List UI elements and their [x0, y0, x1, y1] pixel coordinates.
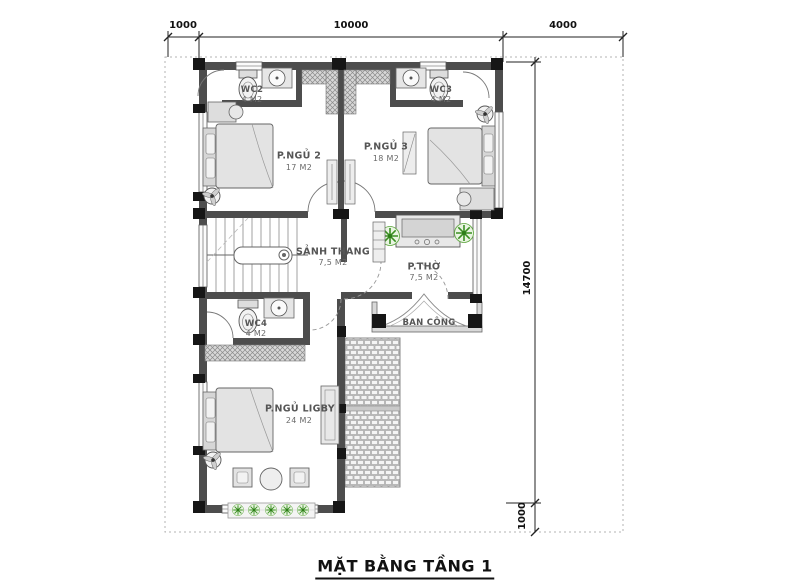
planter-plant: [248, 504, 259, 515]
shelf: [373, 222, 385, 262]
room-area-wc3: 4 M2: [431, 96, 452, 104]
balcony-column: [372, 314, 386, 328]
floor-plan-drawing: [0, 0, 800, 587]
staircase: [207, 218, 308, 292]
planter-plant: [281, 504, 292, 515]
planter-plant: [265, 504, 276, 515]
room-area-bedroom2: 17 M2: [286, 164, 312, 172]
room-label-balcony: BAN CÔNG: [402, 319, 455, 328]
master-bedroom-furniture: [203, 386, 339, 490]
room-area-wc2: 4 M2: [242, 96, 263, 104]
planter-box: [228, 503, 315, 518]
dim-right-1000: 1000: [518, 502, 528, 530]
dim-right-14700: 14700: [523, 261, 533, 296]
room-area-stair-hall: 7,5 M2: [318, 259, 347, 267]
door-wc3: [463, 72, 489, 98]
bed: [428, 128, 482, 184]
room-label-bedroom2: P.NGỦ 2: [277, 151, 321, 161]
pillow: [206, 134, 215, 154]
room-area-wc4: 4 M2: [246, 330, 267, 338]
potted-plant: [455, 224, 474, 243]
pillow: [484, 134, 493, 152]
bed: [216, 124, 273, 188]
ceiling-fan: [475, 105, 494, 124]
room-label-wc2: WC2: [241, 86, 263, 95]
drawing-title: MẶT BẰNG TẦNG 1: [315, 557, 494, 580]
room-label-stair-hall: SẢNH THANG: [296, 247, 370, 257]
dim-top-10000: 10000: [334, 21, 369, 31]
door-wc4: [207, 312, 233, 338]
dim-top-4000: 4000: [549, 21, 577, 31]
wardrobe: [321, 386, 339, 444]
pillow: [206, 158, 215, 178]
room-label-wc4: WC4: [245, 320, 267, 329]
door-corridor: [310, 299, 341, 330]
dim-top-1000: 1000: [169, 21, 197, 31]
bedroom3-furniture: [345, 105, 495, 210]
toilet-tank: [238, 300, 258, 308]
room-label-wc3: WC3: [430, 86, 452, 95]
worship-room-furniture: [373, 215, 474, 262]
balcony-column: [468, 314, 482, 328]
room-area-master: 24 M2: [286, 417, 312, 425]
room-area-worship: 7,5 M2: [409, 274, 438, 282]
room-label-master: P.NGỦ LIGBY: [265, 404, 335, 414]
pillow: [484, 156, 493, 174]
bed: [216, 388, 273, 452]
room-label-bedroom3: P.NGỦ 3: [364, 142, 408, 152]
pillow: [206, 398, 215, 418]
brick-terrace: [345, 338, 400, 487]
room-label-worship: P.THỜ: [407, 262, 440, 272]
pillow: [206, 422, 215, 442]
round-table: [260, 468, 282, 490]
room-area-bedroom3: 18 M2: [373, 155, 399, 163]
floor-plan-page: 1000 10000 4000 14700 1000 WC2 4 M2 WC3 …: [0, 0, 800, 587]
planter-plant: [297, 504, 308, 515]
planter-plant: [232, 504, 243, 515]
